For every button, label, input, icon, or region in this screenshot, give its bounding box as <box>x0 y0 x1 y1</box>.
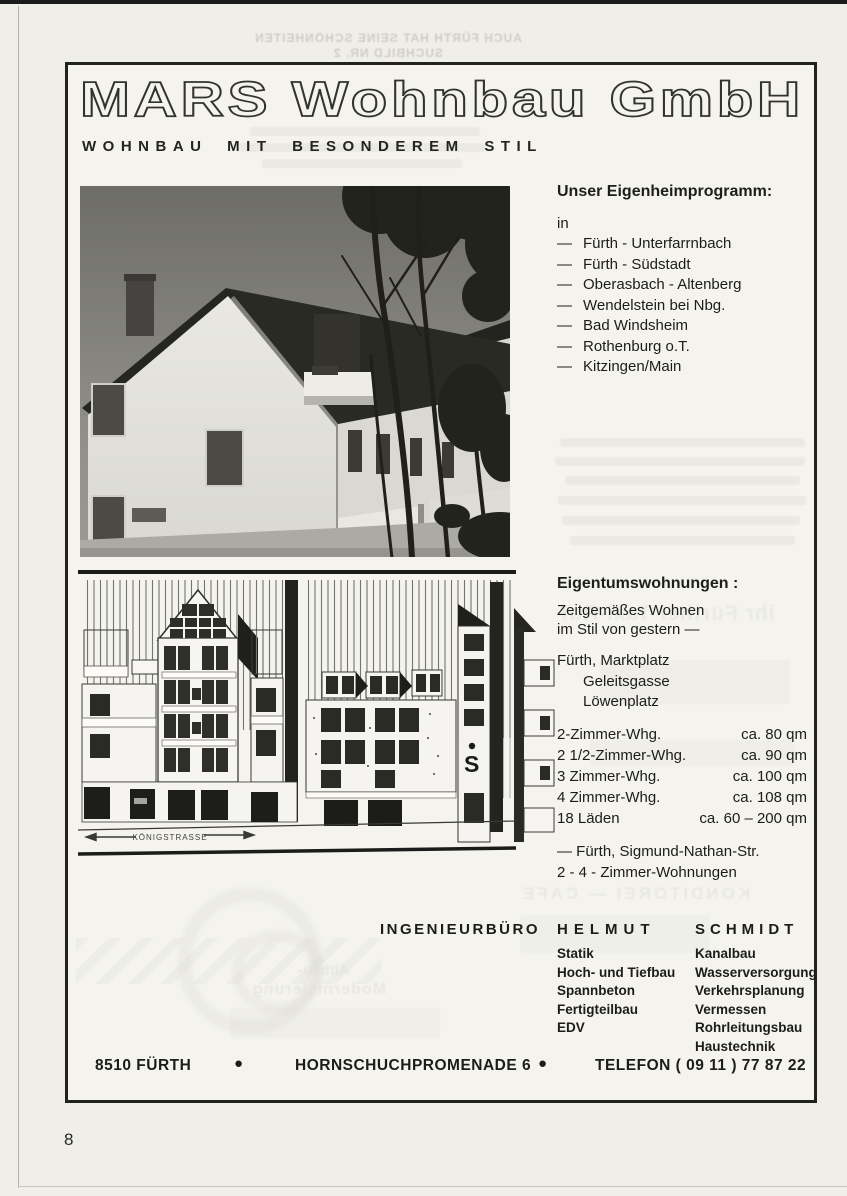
list-item: —Fürth - Südstadt <box>557 255 811 276</box>
table-row: 4 Zimmer-Whg.ca. 108 qm <box>557 787 807 808</box>
scan-edge-left <box>18 6 19 1188</box>
program-heading: Unser Eigenheimprogramm: <box>557 183 811 201</box>
location-label: Fürth - Südstadt <box>583 255 691 276</box>
extra-location: — Fürth, Sigmund-Nathan-Str. <box>557 841 811 863</box>
services-right: Kanalbau Wasserversorgung Verkehrsplanun… <box>695 945 817 1056</box>
service-item: Kanalbau <box>695 945 817 964</box>
location-label: Kitzingen/Main <box>583 357 681 378</box>
service-item: EDV <box>557 1019 675 1038</box>
company-logo-svg: MARS Wohnbau GmbH <box>78 72 808 128</box>
list-item: —Oberasbach - Altenberg <box>557 275 811 296</box>
page-number: 8 <box>64 1130 73 1150</box>
eigenheim-program: Unser Eigenheimprogramm: in —Fürth - Unt… <box>557 183 811 378</box>
dash-marker: — <box>557 275 583 296</box>
bullet-separator-icon: ● <box>234 1055 243 1072</box>
service-item: Fertigteilbau <box>557 1001 675 1020</box>
address-city: 8510 FÜRTH <box>95 1057 191 1075</box>
condo-offer: Eigentumswohnungen : Zeitgemäßes Wohnen … <box>557 575 811 884</box>
unit-type: 2-Zimmer-Whg. <box>557 724 661 745</box>
engineer-first-name: HELMUT <box>557 921 656 938</box>
dash-marker: — <box>557 337 583 358</box>
engineer-last-name: SCHMIDT <box>695 921 798 938</box>
list-item: —Fürth - Unterfarrnbach <box>557 234 811 255</box>
service-item: Hoch- und Tiefbau <box>557 964 675 983</box>
unit-size: ca. 80 qm <box>741 724 807 745</box>
condos-heading: Eigentumswohnungen : <box>557 575 811 593</box>
condo-address: Geleitsgasse <box>557 672 811 693</box>
unit-size: ca. 60 – 200 qm <box>699 808 807 829</box>
list-item: —Wendelstein bei Nbg. <box>557 296 811 317</box>
dash-marker: — <box>557 316 583 337</box>
condo-address: Fürth, Marktplatz <box>557 651 811 672</box>
list-item: —Bad Windsheim <box>557 316 811 337</box>
unit-type: 2 1/2-Zimmer-Whg. <box>557 745 686 766</box>
services-left: Statik Hoch- und Tiefbau Spannbeton Fert… <box>557 945 675 1038</box>
table-row: 2-Zimmer-Whg.ca. 80 qm <box>557 724 807 745</box>
bleedthrough-text: AUCH FÜRTH HAT SEINE SCHÖNHEITEN <box>238 31 538 45</box>
elevation-drawing: S KÖNIGSTRASSE <box>78 568 564 860</box>
tagline: WOHNBAU MIT BESONDEREM STIL <box>82 138 543 155</box>
unit-size: ca. 90 qm <box>741 745 807 766</box>
service-item: Rohrleitungsbau <box>695 1019 817 1038</box>
dash-marker: — <box>557 255 583 276</box>
company-logo-text: MARS Wohnbau GmbH <box>80 73 804 127</box>
bullet-separator-icon: ● <box>538 1055 547 1072</box>
scanned-ad-page: AUCH FÜRTH HAT SEINE SCHÖNHEITEN SUCHBIL… <box>0 0 847 1196</box>
address-phone: TELEFON ( 09 11 ) 77 87 22 <box>595 1057 806 1075</box>
list-item: —Rothenburg o.T. <box>557 337 811 358</box>
service-item: Statik <box>557 945 675 964</box>
unit-size: ca. 108 qm <box>733 787 807 808</box>
sparkasse-s-icon: S <box>464 751 479 777</box>
company-logo: MARS Wohnbau GmbH <box>78 72 808 128</box>
scan-edge-top <box>0 0 847 4</box>
location-label: Fürth - Unterfarrnbach <box>583 234 731 255</box>
unit-type: 4 Zimmer-Whg. <box>557 787 660 808</box>
unit-type: 3 Zimmer-Whg. <box>557 766 660 787</box>
address-street: HORNSCHUCHPROMENADE 6 <box>295 1057 531 1075</box>
slogan-line: im Stil von gestern — <box>557 620 811 639</box>
table-row: 18 Lädenca. 60 – 200 qm <box>557 808 807 829</box>
engineer-office-label: INGENIEURBÜRO <box>380 921 540 938</box>
service-item: Vermessen <box>695 1001 817 1020</box>
unit-size: ca. 100 qm <box>733 766 807 787</box>
location-label: Wendelstein bei Nbg. <box>583 296 725 317</box>
extra-location: 2 - 4 - Zimmer-Wohnungen <box>557 862 811 884</box>
slogan-line: Zeitgemäßes Wohnen <box>557 601 811 620</box>
program-intro: in <box>557 215 811 232</box>
dash-marker: — <box>557 234 583 255</box>
dash-marker: — <box>557 357 583 378</box>
scan-edge-bottom <box>18 1186 847 1187</box>
table-row: 3 Zimmer-Whg.ca. 100 qm <box>557 766 807 787</box>
location-label: Rothenburg o.T. <box>583 337 690 358</box>
service-item: Spannbeton <box>557 982 675 1001</box>
list-item: —Kitzingen/Main <box>557 357 811 378</box>
unit-table: 2-Zimmer-Whg.ca. 80 qm 2 1/2-Zimmer-Whg.… <box>557 724 807 829</box>
location-label: Oberasbach - Altenberg <box>583 275 741 296</box>
house-photo <box>80 186 510 557</box>
advertisement-frame: MARS Wohnbau GmbH WOHNBAU MIT BESONDEREM… <box>65 62 817 1103</box>
condo-address: Löwenplatz <box>557 692 811 713</box>
table-row: 2 1/2-Zimmer-Whg.ca. 90 qm <box>557 745 807 766</box>
service-item: Wasserversorgung <box>695 964 817 983</box>
service-item: Haustechnik <box>695 1038 817 1057</box>
dash-marker: — <box>557 296 583 317</box>
service-item: Verkehrsplanung <box>695 982 817 1001</box>
bleedthrough-text: SUCHBILD NR. 2 <box>238 46 538 60</box>
unit-type: 18 Läden <box>557 808 620 829</box>
location-label: Bad Windsheim <box>583 316 688 337</box>
street-label: KÖNIGSTRASSE <box>132 833 207 842</box>
